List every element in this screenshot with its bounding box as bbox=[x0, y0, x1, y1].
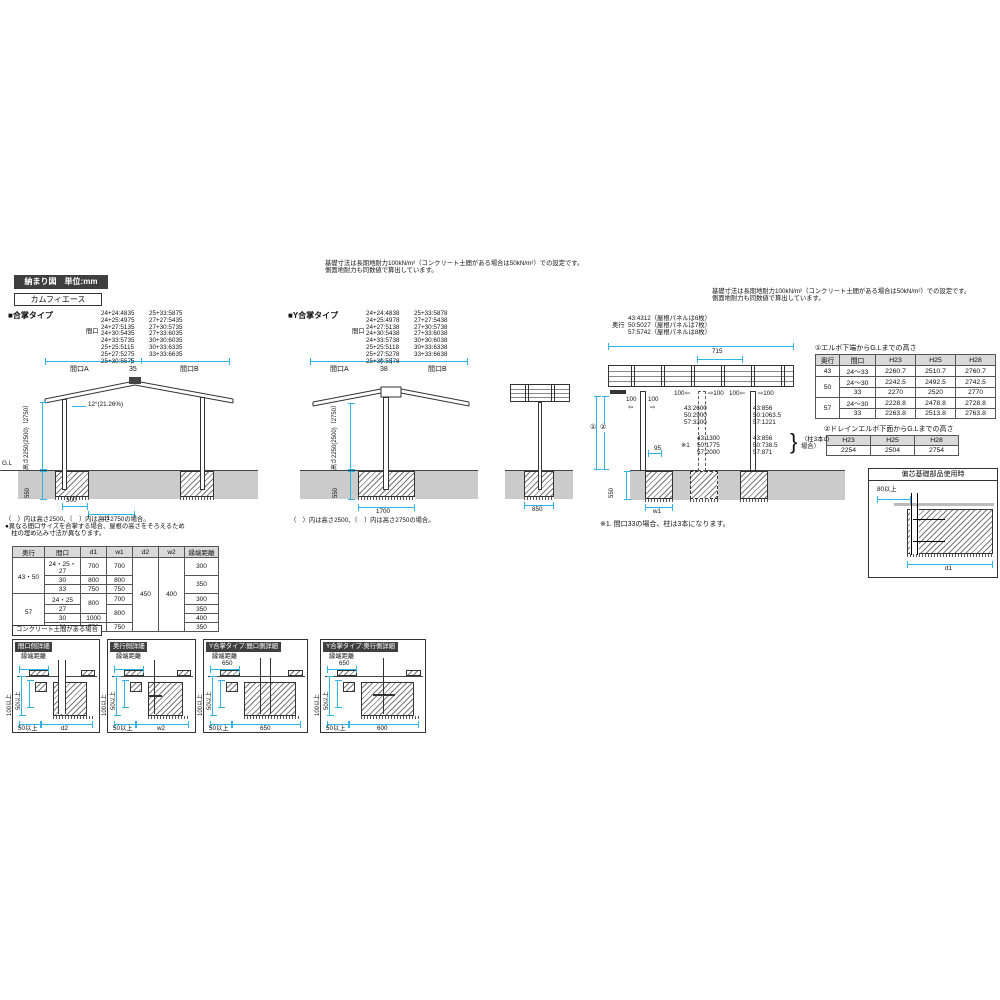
cell: 24・25・27 bbox=[45, 558, 81, 576]
elbow-height-table: 奥行 間口 H23 H25 H28 43 24～33 2260.7 2510.7… bbox=[815, 354, 996, 419]
gassho-offset-label: 300 bbox=[66, 498, 77, 505]
post-section bbox=[154, 660, 155, 714]
ref-note-mark: ※1 bbox=[681, 443, 690, 450]
slab-hatch-left bbox=[220, 670, 240, 676]
cell: 2263.8 bbox=[876, 409, 916, 419]
gassho-dim-tick-right bbox=[141, 358, 142, 364]
edge-distance-label: 縁端距離 bbox=[21, 654, 46, 661]
gassho-roof-drawing bbox=[40, 374, 240, 406]
cell: 1000 bbox=[81, 614, 107, 623]
cell: 300 bbox=[185, 558, 219, 576]
panel-title: 奥行側詳細 bbox=[110, 642, 147, 652]
y-depth-dim-line bbox=[350, 471, 351, 500]
gassho-dim-b: 間口B bbox=[180, 366, 199, 374]
table-row: 57 24・25 800 700 300 bbox=[13, 594, 219, 605]
three-post-footnote: ※1. 間口33の場合、柱は3本になります。 bbox=[600, 521, 730, 529]
cell: 2228.8 bbox=[876, 398, 916, 409]
roof-slab bbox=[608, 365, 794, 387]
y-note: （ ）内は高さ2500、〔 〕内は高さ2750の場合。 bbox=[290, 518, 435, 525]
min80-label: 80以上 bbox=[877, 487, 897, 494]
cell: 800 bbox=[107, 576, 133, 585]
step-hatch bbox=[343, 682, 355, 692]
cell: 2513.8 bbox=[916, 409, 956, 419]
cell: 33 bbox=[840, 388, 876, 398]
v50-dim bbox=[124, 680, 125, 708]
surface-line bbox=[325, 676, 423, 677]
cell: 30 bbox=[45, 614, 81, 623]
offset-r-right: ⇨100 bbox=[758, 391, 774, 398]
cell: 2510.7 bbox=[916, 366, 956, 377]
y-gassho-section-title: ■Y合掌タイプ bbox=[288, 312, 338, 321]
elev-right-post bbox=[750, 391, 756, 471]
v50-label: 50以上 bbox=[206, 691, 214, 710]
table-row: 50 24～30 2242.5 2492.5 2742.5 bbox=[816, 377, 996, 388]
cell: 24～33 bbox=[840, 366, 876, 377]
elev-gravel-right bbox=[740, 499, 768, 502]
col-header: w2 bbox=[159, 547, 185, 558]
anchor-plate bbox=[373, 694, 395, 696]
drain-table-title: ②ドレインエルボ下面からG.Lまでの高さ bbox=[824, 426, 954, 434]
b50-label: 50以上 bbox=[209, 726, 229, 733]
sideview-footing-label: 850 bbox=[532, 507, 543, 514]
cell: 750 bbox=[107, 585, 133, 594]
gassho-depth-label: 550 bbox=[24, 488, 32, 498]
detail-panel-maguchi: 間口側詳細 縁端距離 100以上 50以上 50以上 d2 bbox=[12, 639, 100, 733]
span-values-center-3post: 43:1300 50:1775 57:2000 bbox=[697, 436, 720, 456]
v100-label: 100以上 bbox=[101, 694, 109, 716]
col-header: H25 bbox=[916, 355, 956, 366]
cell: 50 bbox=[816, 377, 840, 398]
gravel-strip bbox=[361, 716, 419, 719]
drawing-title-box: 納まり図 単位:mm bbox=[14, 275, 108, 289]
cell: 350 bbox=[185, 605, 219, 614]
bwidth-label: 650 bbox=[260, 726, 271, 733]
gassho-height-label: 高さ2250(2500)〔2750〕 bbox=[23, 402, 31, 470]
slab-hatch-left bbox=[29, 670, 49, 676]
edge-dim-line bbox=[114, 669, 144, 670]
slab-hatch-left bbox=[337, 670, 357, 676]
cell: 700 bbox=[107, 558, 133, 576]
gassho-section-title: ■合掌タイプ bbox=[8, 312, 53, 321]
cell: 2728.8 bbox=[956, 398, 996, 409]
cell: 800 bbox=[81, 576, 107, 585]
v50-label: 50以上 bbox=[323, 691, 331, 710]
elev-center-post-optional bbox=[698, 391, 706, 471]
foundation-hatch bbox=[907, 509, 993, 554]
cell: 2270 bbox=[876, 388, 916, 398]
eave-bracket bbox=[610, 390, 626, 394]
elev-left-post bbox=[640, 391, 646, 471]
gassho-height-dim-line bbox=[42, 402, 43, 470]
elev-gravel-left bbox=[645, 499, 673, 502]
cell: 700 bbox=[81, 558, 107, 576]
gassho-dim-mid: 35 bbox=[129, 366, 137, 374]
y-dim-b: 間口B bbox=[428, 366, 447, 374]
anchor-bolt-upper bbox=[913, 519, 945, 520]
cell: 2742.5 bbox=[956, 377, 996, 388]
col-header: 奥行 bbox=[816, 355, 840, 366]
cell: 700 bbox=[107, 594, 133, 605]
cell: 2504 bbox=[871, 446, 915, 456]
step-hatch bbox=[226, 682, 238, 692]
col-header: d1 bbox=[81, 547, 107, 558]
cell: 33 bbox=[840, 409, 876, 419]
cell: 300 bbox=[185, 594, 219, 605]
post-line-2 bbox=[270, 658, 271, 714]
sideview-roof-stack bbox=[510, 384, 570, 402]
edge-dim-line bbox=[210, 669, 240, 670]
surface-line bbox=[17, 676, 97, 677]
cell: 400 bbox=[159, 558, 185, 632]
col-header: 奥行 bbox=[13, 547, 45, 558]
elev-gravel-center bbox=[690, 499, 718, 502]
okuyuki-spec: 43:4312（屋根パネルは6枚） 50:5027（屋根パネルは7枚） 57:5… bbox=[628, 316, 711, 336]
post-section bbox=[383, 658, 384, 714]
b50-label: 50以上 bbox=[326, 726, 346, 733]
gassho-ground-band bbox=[18, 471, 258, 499]
gravel-strip bbox=[244, 716, 301, 719]
cell: 27 bbox=[45, 605, 81, 614]
y-dim-a: 間口A bbox=[330, 366, 349, 374]
depth-overall-dim bbox=[608, 346, 794, 347]
elev-footing-right bbox=[740, 471, 768, 499]
col-header: w1 bbox=[107, 547, 133, 558]
cell: 33 bbox=[45, 585, 81, 594]
y-height-dim-line bbox=[350, 403, 351, 470]
elev-depth-dim bbox=[626, 471, 627, 500]
gassho-spec-col1: 24+24:4835 24+25:4975 24+27:5135 24+30:5… bbox=[101, 311, 134, 365]
cell: 750 bbox=[81, 585, 107, 594]
b50-label: 50以上 bbox=[18, 726, 38, 733]
gassho-slope-label: 12°(21.26%) bbox=[88, 402, 123, 409]
cell: 24～30 bbox=[840, 398, 876, 409]
cell: 2478.8 bbox=[916, 398, 956, 409]
table-row: 2254 2504 2754 bbox=[827, 446, 959, 456]
col-header: H28 bbox=[956, 355, 996, 366]
arrow-left-icon: ⇦ bbox=[628, 405, 633, 412]
bwidth-label: d2 bbox=[61, 726, 68, 733]
y-spec-col1: 24+24:4838 24+25:4978 24+27:5138 24+30:5… bbox=[366, 311, 399, 365]
panel-pitch-dim bbox=[697, 359, 743, 360]
v50-label: 50以上 bbox=[110, 691, 118, 710]
v50-dim bbox=[337, 680, 338, 708]
offset-100-left: 100 bbox=[626, 397, 637, 404]
y-spec-col2: 25+33:5878 27+27:5438 27+30:5738 27+33:6… bbox=[414, 311, 447, 359]
gassho-right-post bbox=[200, 397, 205, 490]
edge-distance-value: 650 bbox=[339, 661, 350, 668]
surface-line bbox=[208, 676, 305, 677]
gassho-right-footing bbox=[180, 471, 214, 497]
gassho-left-footing bbox=[55, 471, 89, 497]
post-line-1 bbox=[911, 493, 912, 555]
gassho-depth-dim-line bbox=[42, 471, 43, 500]
eccentric-foundation-box: 偏芯基礎部品使用時 80以上 d1 bbox=[868, 468, 998, 578]
gassho-left-post bbox=[62, 399, 67, 490]
edge-dim-line bbox=[19, 669, 49, 670]
gassho-maguchi-label: 間口 bbox=[86, 329, 99, 336]
detail-panel-y-okuyuki: Y合掌タイプ:奥行側詳細 縁端距離 650 100以上 50以上 50以上 60… bbox=[320, 639, 426, 733]
detail-panel-okuyuki: 奥行側詳細 縁端距離 100以上 50以上 50以上 w2 bbox=[107, 639, 196, 733]
foundation-note-right: 基礎寸法は長期地耐力100kN/m²（コンクリート土間がある場合は50kN/m²… bbox=[712, 289, 970, 303]
step-hatch bbox=[35, 682, 47, 692]
table-row: 33 2270 2520 2770 bbox=[816, 388, 996, 398]
drawing-page: 納まり図 単位:mm カムフィエース ■合掌タイプ 間口 24+24:4835 … bbox=[0, 0, 1000, 1000]
gassho-notes: （ ）内は高さ2500、〔 〕内は高さ2750の場合。 ●異なる間口サイズを合掌… bbox=[5, 517, 185, 537]
cell: 750 bbox=[107, 623, 133, 632]
d1-label: d1 bbox=[945, 566, 952, 573]
col-header: H28 bbox=[915, 436, 959, 446]
cell: 57 bbox=[816, 398, 840, 419]
v50-dim bbox=[29, 680, 30, 708]
elev-depth-label: 550 bbox=[608, 488, 616, 498]
footing-dimension-table: 奥行 間口 d1 w1 d2 w2 縁端距離 43・50 24・25・27 70… bbox=[12, 546, 219, 632]
product-name-box: カムフィエース bbox=[14, 293, 102, 306]
gassho-spec-col2: 25+33:5875 27+27:5435 27+30:5735 27+33:6… bbox=[149, 311, 182, 359]
elev-footing-center-optional bbox=[690, 471, 718, 499]
post-line-2 bbox=[917, 493, 918, 555]
bwidth-label: 600 bbox=[377, 726, 388, 733]
slab-hatch-right bbox=[406, 670, 421, 676]
step-hatch bbox=[130, 682, 142, 692]
cell: 350 bbox=[185, 623, 219, 632]
offset-mid-left: 100⇦ bbox=[674, 391, 690, 398]
drain-height-table: H23 H25 H28 2254 2504 2754 bbox=[826, 435, 959, 456]
cell: 2763.8 bbox=[956, 409, 996, 419]
panel-title: Y合掌タイプ:奥行側詳細 bbox=[323, 642, 398, 652]
detail-panel-y-maguchi: Y合掌タイプ:間口側詳細 縁端距離 650 100以上 50以上 50以上 65… bbox=[203, 639, 308, 733]
col-header: 間口 bbox=[840, 355, 876, 366]
gassho-offset-dim-line bbox=[62, 506, 88, 507]
cell: 450 bbox=[133, 558, 159, 632]
span-values-right: 43:856 50:1063.5 57:1221 bbox=[753, 406, 781, 426]
cell: 800 bbox=[107, 605, 133, 623]
cell: 2492.5 bbox=[916, 377, 956, 388]
anchor-plate bbox=[148, 695, 162, 697]
gravel-strip bbox=[148, 716, 189, 719]
span-values-right-3post: 43:856 50:738.5 57:871 bbox=[753, 436, 778, 456]
elev-footing-left bbox=[645, 471, 673, 499]
surface-line bbox=[112, 676, 193, 677]
edge-distance-value: 650 bbox=[222, 661, 233, 668]
panel-pitch-label: 715 bbox=[712, 349, 723, 356]
y-gravel bbox=[358, 497, 415, 500]
sideview-post bbox=[538, 402, 542, 490]
foundation-note-left: 基礎寸法は長期地耐力100kN/m²（コンクリート土間がある場合は50kN/m²… bbox=[325, 261, 583, 275]
concrete-slab-caption: コンクリート土間がある場合 bbox=[12, 625, 102, 636]
ref2-dim-line bbox=[604, 396, 605, 470]
col-header: 間口 bbox=[45, 547, 81, 558]
cell: 2520 bbox=[916, 388, 956, 398]
post-section bbox=[58, 660, 66, 714]
panel-title: 間口側詳細 bbox=[15, 642, 52, 652]
cell: 43 bbox=[816, 366, 840, 377]
cell: 2260.7 bbox=[876, 366, 916, 377]
cell: 24～30 bbox=[840, 377, 876, 388]
edge-distance-label: 縁端距離 bbox=[116, 654, 141, 661]
v100-label: 100以上 bbox=[197, 694, 205, 716]
b50-label: 50以上 bbox=[113, 726, 133, 733]
w1-label: w1 bbox=[653, 509, 661, 516]
footing-hatch bbox=[361, 682, 414, 716]
v50-label: 50以上 bbox=[15, 691, 23, 710]
y-dim-mid: 38 bbox=[380, 366, 388, 374]
d95-dim bbox=[648, 453, 662, 454]
slab-hatch-right bbox=[81, 670, 95, 676]
edge-dim-line bbox=[327, 669, 357, 670]
gravel-strip bbox=[907, 554, 993, 557]
cell: 350 bbox=[185, 576, 219, 594]
slab-hatch-right bbox=[288, 670, 303, 676]
slab-hatch-left bbox=[124, 670, 144, 676]
gl-label: G.L bbox=[2, 461, 12, 468]
arrow-right-icon: ⇨ bbox=[650, 405, 655, 412]
y-height-label: 高さ2250(2500)〔2750〕 bbox=[331, 402, 339, 470]
col-header: 縁端距離 bbox=[185, 547, 219, 558]
col-header: H25 bbox=[871, 436, 915, 446]
gassho-dim-a: 間口A bbox=[70, 366, 89, 374]
post-line-1 bbox=[260, 658, 261, 714]
y-maguchi-label: 間口 bbox=[352, 329, 365, 336]
span-values-center: 43:2600 50:2900 57:3300 bbox=[684, 406, 707, 426]
cell: 2754 bbox=[915, 446, 959, 456]
v100-label: 100以上 bbox=[6, 694, 14, 716]
col-header: H23 bbox=[876, 355, 916, 366]
gassho-d1-dim-line bbox=[88, 514, 135, 515]
gravel-strip bbox=[53, 716, 93, 719]
cell: 43・50 bbox=[13, 558, 45, 594]
min80-dim bbox=[877, 499, 911, 500]
table-row: 57 24～30 2228.8 2478.8 2728.8 bbox=[816, 398, 996, 409]
gassho-slope-leader bbox=[72, 406, 86, 407]
cell: 2242.5 bbox=[876, 377, 916, 388]
slab-surface bbox=[894, 503, 994, 506]
gassho-right-gravel bbox=[180, 497, 214, 500]
okuyuki-label: 奥行 bbox=[612, 323, 625, 330]
y-footing-label: 1700 bbox=[376, 509, 390, 516]
offset-r-left: 100⇦ bbox=[729, 391, 745, 398]
elbow-table-title: ①エルボ下端からG.Lまでの高さ bbox=[815, 345, 917, 353]
cell: 30 bbox=[45, 576, 81, 585]
gassho-gl-line bbox=[0, 470, 258, 471]
ref2-mark: ② bbox=[600, 424, 606, 432]
bwidth-label: w2 bbox=[157, 726, 165, 733]
offset-mid-right: ⇨100 bbox=[708, 391, 724, 398]
gassho-width-dim-line bbox=[45, 361, 230, 362]
sideview-gravel bbox=[524, 497, 554, 500]
cell: 24・25 bbox=[45, 594, 81, 605]
v50-dim bbox=[220, 680, 221, 708]
y-center-post bbox=[383, 397, 389, 490]
anchor-bolt-lower bbox=[913, 541, 945, 542]
panel-title: Y合掌タイプ:間口側詳細 bbox=[206, 642, 281, 652]
three-post-note: （柱3本の場合） bbox=[801, 437, 835, 451]
table-row: 33 2263.8 2513.8 2763.8 bbox=[816, 409, 996, 419]
cell: 800 bbox=[81, 594, 107, 614]
cell: 2760.7 bbox=[956, 366, 996, 377]
cell: 400 bbox=[185, 614, 219, 623]
table-row: 43・50 24・25・27 700 700 450 400 300 bbox=[13, 558, 219, 576]
cell: 2770 bbox=[956, 388, 996, 398]
col-header: d2 bbox=[133, 547, 159, 558]
d95-label: 95 bbox=[654, 446, 661, 453]
offset-100-right: 100 bbox=[648, 397, 659, 404]
ref1-mark: ① bbox=[590, 424, 596, 432]
ref1-dim-line bbox=[596, 396, 597, 470]
brace-icon: } bbox=[790, 431, 797, 453]
y-depth-label: 550 bbox=[332, 488, 340, 498]
eccentric-box-title: 偏芯基礎部品使用時 bbox=[869, 469, 997, 481]
slab-hatch-right bbox=[177, 670, 191, 676]
table-row: 43 24～33 2260.7 2510.7 2760.7 bbox=[816, 366, 996, 377]
v100-label: 100以上 bbox=[314, 694, 322, 716]
